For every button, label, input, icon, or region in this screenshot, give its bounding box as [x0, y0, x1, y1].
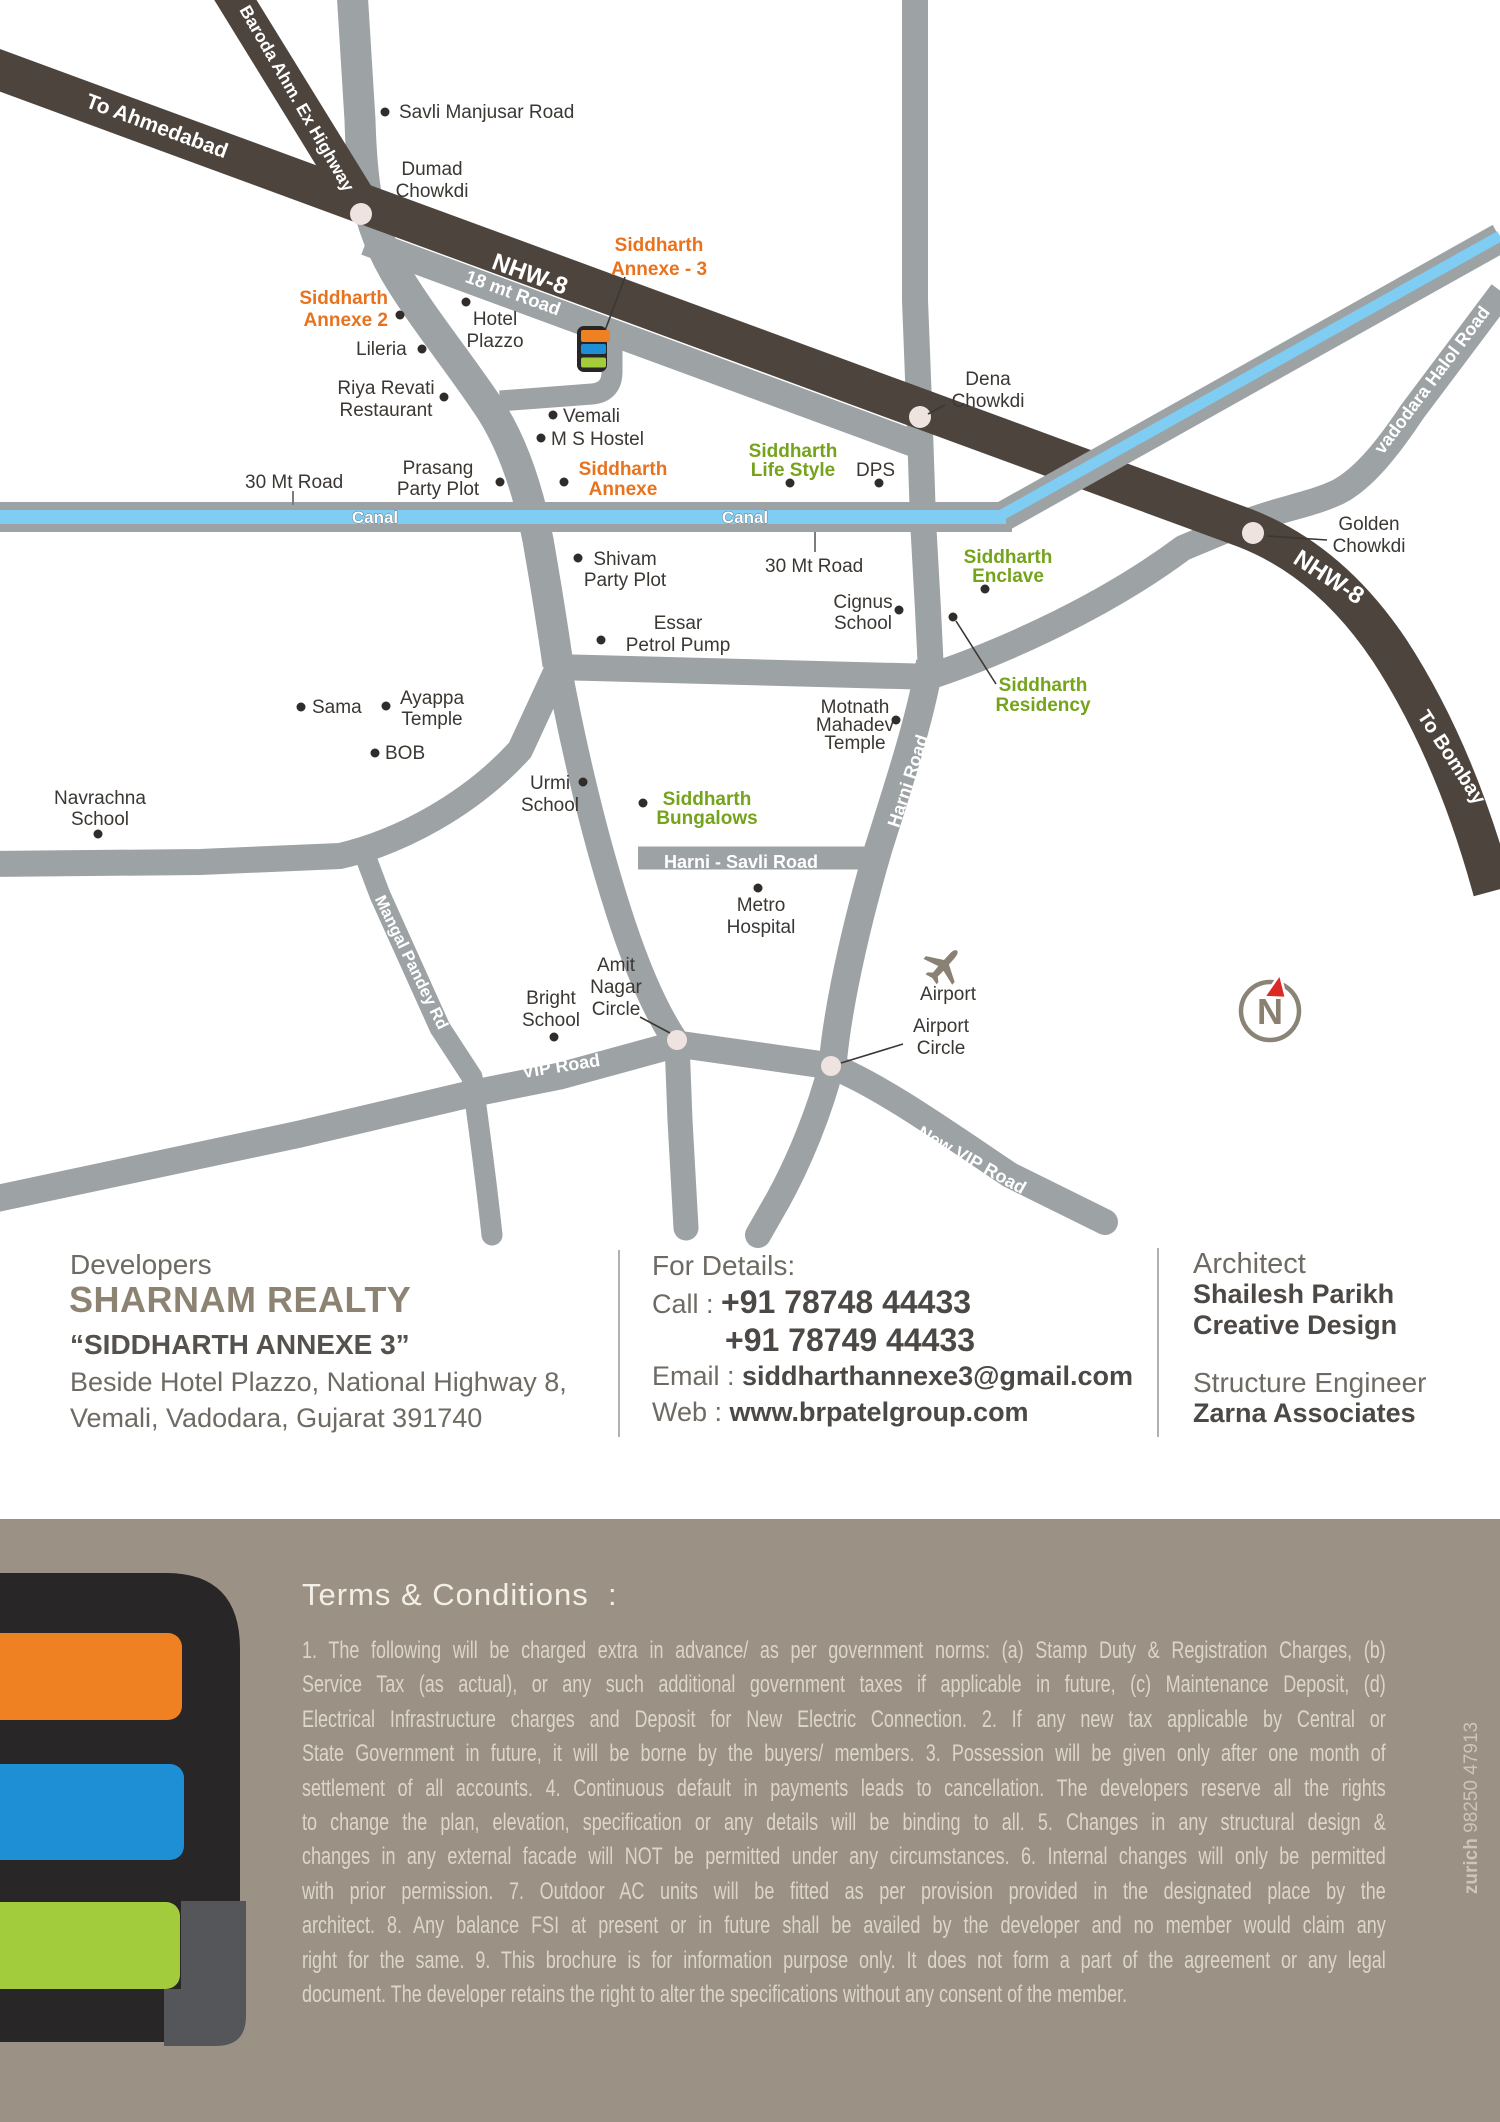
svg-text:Life Style: Life Style	[751, 460, 835, 481]
svg-text:Riya Revati: Riya Revati	[337, 378, 434, 399]
svg-text:Plazzo: Plazzo	[466, 331, 523, 352]
svg-text:Siddharth: Siddharth	[999, 675, 1088, 696]
svg-text:Siddharth: Siddharth	[299, 288, 388, 309]
svg-text:Chowkdi: Chowkdi	[1333, 536, 1406, 557]
svg-text:Siddharth: Siddharth	[579, 459, 668, 480]
svg-text:Hospital: Hospital	[727, 917, 796, 938]
svg-text:Navrachna: Navrachna	[54, 788, 146, 809]
svg-text:Annexe 2: Annexe 2	[304, 310, 388, 331]
svg-text:School: School	[71, 809, 129, 830]
svg-text:M S Hostel: M S Hostel	[551, 429, 644, 450]
svg-text:Enclave: Enclave	[972, 566, 1044, 587]
svg-text:Prasang: Prasang	[403, 458, 474, 479]
svg-text:Lileria: Lileria	[356, 339, 407, 360]
svg-text:Airport: Airport	[920, 984, 977, 1005]
svg-text:Airport: Airport	[913, 1016, 970, 1037]
svg-text:School: School	[522, 1010, 580, 1031]
svg-text:BOB: BOB	[385, 743, 425, 764]
svg-text:Amit: Amit	[597, 955, 636, 976]
svg-text:Chowkdi: Chowkdi	[952, 391, 1025, 412]
svg-text:Sama: Sama	[312, 697, 362, 718]
svg-text:Golden: Golden	[1338, 514, 1399, 535]
svg-text:Bungalows: Bungalows	[656, 808, 757, 829]
svg-text:Siddharth: Siddharth	[964, 547, 1053, 568]
svg-text:30 Mt Road: 30 Mt Road	[765, 556, 863, 577]
svg-text:Party Plot: Party Plot	[397, 479, 480, 500]
svg-text:School: School	[521, 795, 579, 816]
svg-text:Temple: Temple	[401, 709, 462, 730]
svg-text:Urmi: Urmi	[530, 773, 570, 794]
svg-text:Annexe - 3: Annexe - 3	[611, 259, 707, 280]
svg-text:New VIP Road: New VIP Road	[914, 1122, 1029, 1198]
svg-text:30 Mt Road: 30 Mt Road	[245, 472, 343, 493]
svg-text:Dena: Dena	[965, 369, 1011, 390]
svg-text:Mangal Pandey Rd: Mangal Pandey Rd	[371, 893, 451, 1033]
svg-text:Essar: Essar	[654, 613, 703, 634]
svg-text:Petrol Pump: Petrol Pump	[626, 635, 731, 656]
svg-text:Restaurant: Restaurant	[340, 400, 434, 421]
svg-text:Cignus: Cignus	[833, 592, 892, 613]
svg-text:Circle: Circle	[592, 999, 641, 1020]
svg-text:Residency: Residency	[995, 695, 1090, 716]
svg-text:Chowkdi: Chowkdi	[396, 181, 469, 202]
svg-text:Bright: Bright	[526, 988, 576, 1009]
svg-text:Party Plot: Party Plot	[584, 570, 667, 591]
svg-text:Siddharth: Siddharth	[663, 789, 752, 810]
svg-text:Hotel: Hotel	[473, 309, 517, 330]
svg-text:DPS: DPS	[856, 460, 895, 481]
svg-text:Canal: Canal	[352, 508, 398, 527]
svg-text:School: School	[834, 613, 892, 634]
svg-text:Ayappa: Ayappa	[400, 688, 465, 709]
svg-text:Shivam: Shivam	[593, 549, 656, 570]
svg-text:Annexe: Annexe	[589, 479, 658, 500]
svg-text:Canal: Canal	[722, 508, 768, 527]
svg-text:Siddharth: Siddharth	[615, 235, 704, 256]
svg-text:Temple: Temple	[824, 733, 885, 754]
svg-text:Harni - Savli Road: Harni - Savli Road	[664, 852, 818, 872]
svg-text:Nagar: Nagar	[590, 977, 642, 998]
svg-text:Metro: Metro	[737, 895, 786, 916]
svg-text:vadodara Halol Road: vadodara Halol Road	[1370, 302, 1494, 457]
svg-text:Dumad: Dumad	[401, 159, 462, 180]
svg-text:Savli Manjusar Road: Savli Manjusar Road	[399, 102, 574, 123]
svg-text:Circle: Circle	[917, 1038, 966, 1059]
svg-text:Siddharth: Siddharth	[749, 441, 838, 462]
svg-text:Vemali: Vemali	[563, 406, 620, 427]
